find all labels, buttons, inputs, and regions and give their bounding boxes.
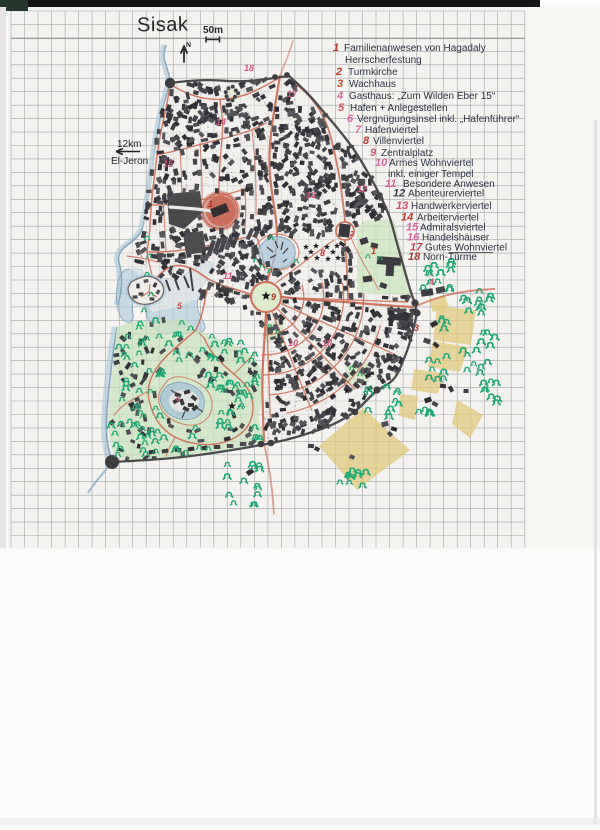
- svg-text:4: 4: [428, 277, 434, 287]
- svg-text:Herrscherfestung: Herrscherfestung: [345, 55, 422, 66]
- svg-text:Abenteurerviertel: Abenteurerviertel: [408, 189, 484, 200]
- svg-text:3: 3: [414, 323, 419, 333]
- svg-text:6: 6: [347, 113, 354, 125]
- svg-text:2: 2: [349, 231, 354, 238]
- svg-text:Sisak: Sisak: [137, 13, 189, 36]
- svg-text:5: 5: [338, 102, 345, 114]
- svg-text:2: 2: [335, 66, 342, 78]
- svg-text:10: 10: [322, 338, 332, 348]
- svg-text:12km: 12km: [117, 139, 141, 150]
- svg-text:3: 3: [337, 78, 343, 90]
- svg-text:Wachhaus: Wachhaus: [349, 79, 396, 90]
- svg-text:Norn-Türme: Norn-Türme: [423, 252, 477, 263]
- svg-text:Handwerkerviertel: Handwerkerviertel: [411, 201, 492, 212]
- svg-text:7: 7: [355, 124, 362, 136]
- svg-text:El-Jeron: El-Jeron: [111, 156, 148, 167]
- svg-text:9: 9: [271, 292, 276, 302]
- svg-text:Hafen + Anlegestellen: Hafen + Anlegestellen: [350, 103, 448, 114]
- svg-text:17: 17: [287, 89, 298, 99]
- svg-text:Familienanwesen von Hagadaly: Familienanwesen von Hagadaly: [344, 43, 486, 54]
- svg-text:10: 10: [375, 157, 388, 169]
- svg-text:50m: 50m: [203, 25, 223, 36]
- svg-text:8: 8: [320, 248, 325, 258]
- svg-text:10: 10: [288, 338, 298, 348]
- svg-text:1: 1: [371, 246, 376, 256]
- svg-text:6: 6: [176, 396, 180, 403]
- svg-text:13: 13: [306, 190, 316, 200]
- svg-text:Armes Wohnviertel: Armes Wohnviertel: [389, 158, 473, 169]
- svg-text:Hafenviertel: Hafenviertel: [365, 125, 418, 136]
- svg-text:Turmkirche: Turmkirche: [348, 67, 398, 78]
- svg-text:11: 11: [223, 271, 232, 281]
- svg-text:12: 12: [393, 188, 405, 200]
- svg-text:1: 1: [333, 42, 339, 54]
- svg-text:13: 13: [396, 200, 408, 212]
- svg-text:Vergnügungsinsel inkl. „Hafenf: Vergnügungsinsel inkl. „Hafenführer“: [357, 114, 519, 125]
- svg-text:14: 14: [216, 117, 226, 127]
- svg-text:12: 12: [357, 184, 367, 194]
- svg-text:18: 18: [244, 63, 254, 73]
- svg-text:4: 4: [336, 90, 343, 102]
- svg-text:18: 18: [408, 251, 421, 263]
- svg-text:8: 8: [363, 135, 370, 147]
- svg-text:Gasthaus: „Zum Wilden Eber 15“: Gasthaus: „Zum Wilden Eber 15“: [349, 91, 495, 102]
- svg-text:Villenviertel: Villenviertel: [373, 136, 424, 147]
- svg-text:1: 1: [208, 199, 213, 209]
- svg-text:15: 15: [163, 159, 174, 169]
- svg-text:N: N: [186, 42, 191, 49]
